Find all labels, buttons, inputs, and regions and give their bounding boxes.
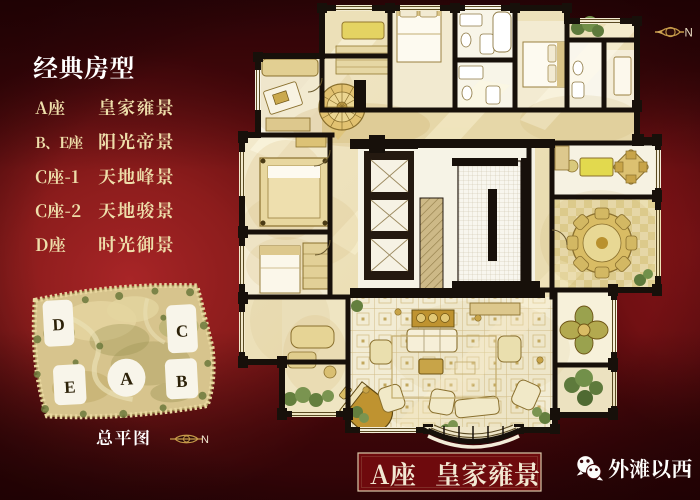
svg-text:D: D [52, 315, 65, 335]
svg-text:N: N [685, 28, 693, 40]
svg-text:N: N [201, 434, 209, 446]
svg-text:C: C [175, 321, 188, 341]
svg-text:A: A [119, 368, 133, 389]
svg-text:B: B [176, 372, 188, 392]
svg-text:E: E [64, 377, 76, 397]
